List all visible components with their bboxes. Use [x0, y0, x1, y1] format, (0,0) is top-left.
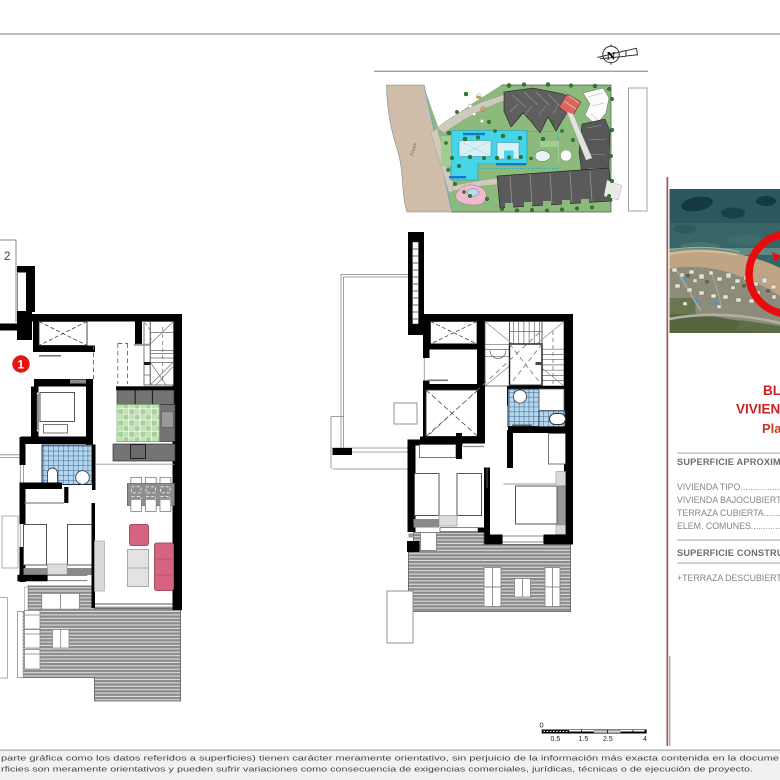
svg-text:1: 1: [17, 358, 24, 372]
svg-text:TERRAZA CUBIERTA...........: TERRAZA CUBIERTA...........: [677, 508, 780, 518]
svg-text:Planta Baja: Planta Baja: [762, 421, 780, 436]
svg-text:SUPERFICIE APROXIMADA: SUPERFICIE APROXIMADA: [677, 457, 780, 467]
svg-text:BLOQUE 5: BLOQUE 5: [763, 383, 780, 398]
svg-text:rficies son meramente orientat: rficies son meramente orientativos y pue…: [1, 767, 753, 774]
svg-text:0.5: 0.5: [551, 736, 561, 743]
svg-text:N: N: [607, 49, 616, 63]
svg-text:0: 0: [540, 721, 544, 730]
svg-text:VIVIENDA TIPO.................: VIVIENDA TIPO....................: [677, 482, 780, 492]
svg-text:ELEM. COMUNES...............: ELEM. COMUNES...............: [677, 521, 780, 531]
svg-text:SUPERFICIE CONSTRUIDA: SUPERFICIE CONSTRUIDA: [677, 548, 780, 558]
svg-text:VIVIENDA BAJOCUBIERTA....: VIVIENDA BAJOCUBIERTA....: [677, 495, 780, 505]
svg-text:parte gráfica como los datos r: parte gráfica como los datos referidos a…: [1, 756, 779, 763]
svg-text:4: 4: [643, 736, 647, 743]
svg-text:2.5: 2.5: [603, 736, 613, 743]
svg-text:VIVIENDA T1: VIVIENDA T1: [736, 402, 780, 417]
svg-text:1.5: 1.5: [579, 736, 589, 743]
svg-text:+TERRAZA DESCUBIERTA....: +TERRAZA DESCUBIERTA....: [677, 573, 780, 583]
svg-text:2: 2: [4, 251, 10, 263]
